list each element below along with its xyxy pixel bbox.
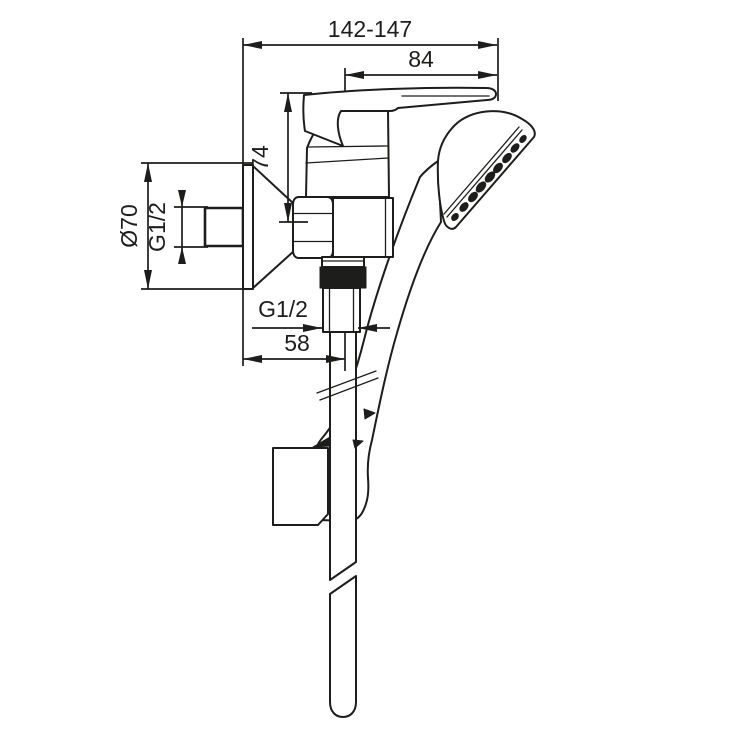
union-nut [293,197,333,258]
dim-hose-offset-label: 58 [284,330,310,356]
hose-nut [323,288,360,332]
dim-overall-width-label: 142-147 [328,16,412,42]
hose-connector [320,257,366,332]
dim-escutcheon-diameter-label: Ø70 [116,204,142,247]
outlet-collar [322,257,364,267]
shower-head [438,111,535,229]
technical-drawing-page: 142-147 84 74 Ø70 G1/2 [0,0,736,744]
inlet-stub [205,208,243,246]
dim-lever-length-label: 84 [408,46,434,72]
hose-upper-segment [330,332,356,580]
dim-inlet-thread-label: G1/2 [144,202,170,252]
rubber-sleeve [320,267,366,288]
dim-lever-height-label: 74 [247,145,273,171]
dim-inlet-thread: G1/2 [144,190,208,264]
wall-escutcheon [205,165,294,289]
hose-lower-segment [330,576,356,717]
escutcheon-plate [243,165,253,289]
shower-hose [330,332,356,717]
wall-bracket [273,448,328,525]
valve-body [333,198,393,257]
shower-mixer-drawing: 142-147 84 74 Ø70 G1/2 [0,0,736,744]
dim-hose-thread-label: G1/2 [258,296,308,322]
dim-lever-length: 84 [345,46,497,92]
dim-hose-thread: G1/2 [252,296,390,332]
